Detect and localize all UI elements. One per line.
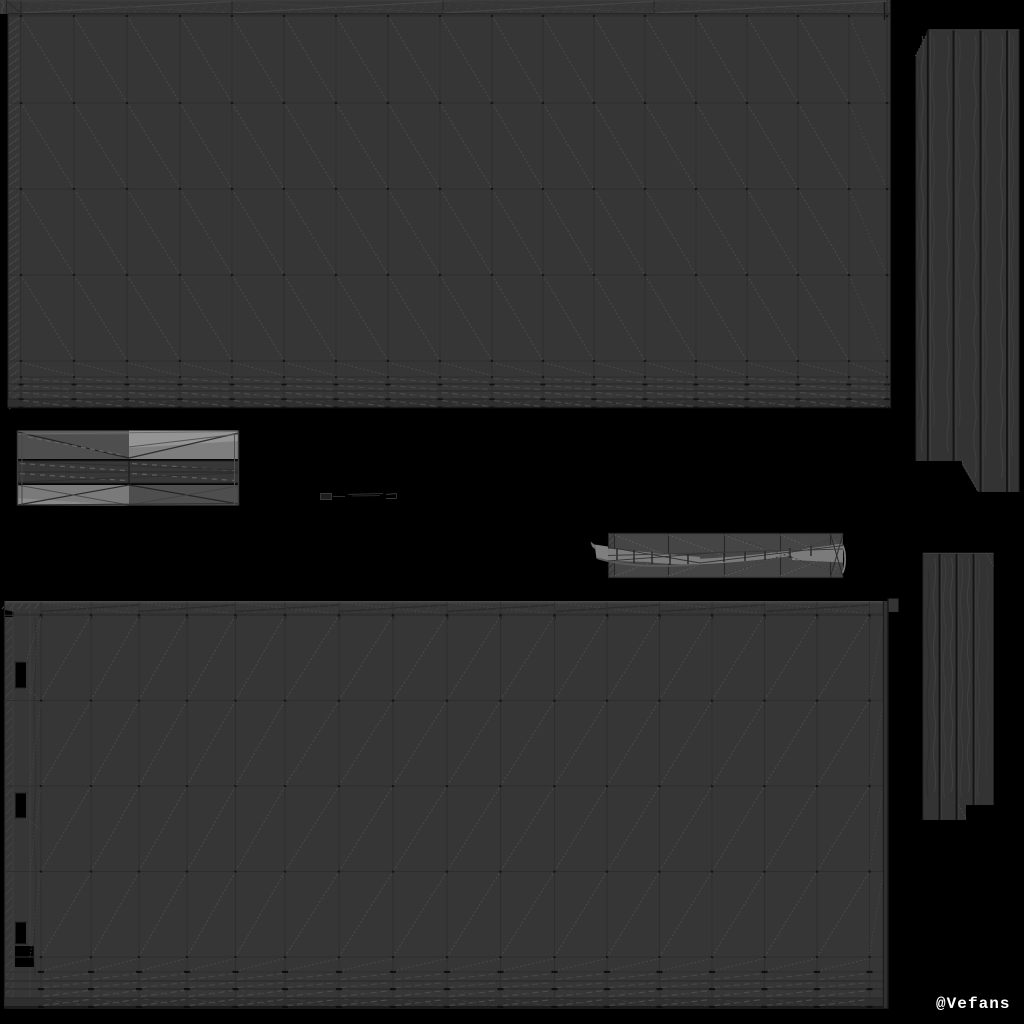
svg-text:@Vefans: @Vefans: [936, 995, 1011, 1013]
